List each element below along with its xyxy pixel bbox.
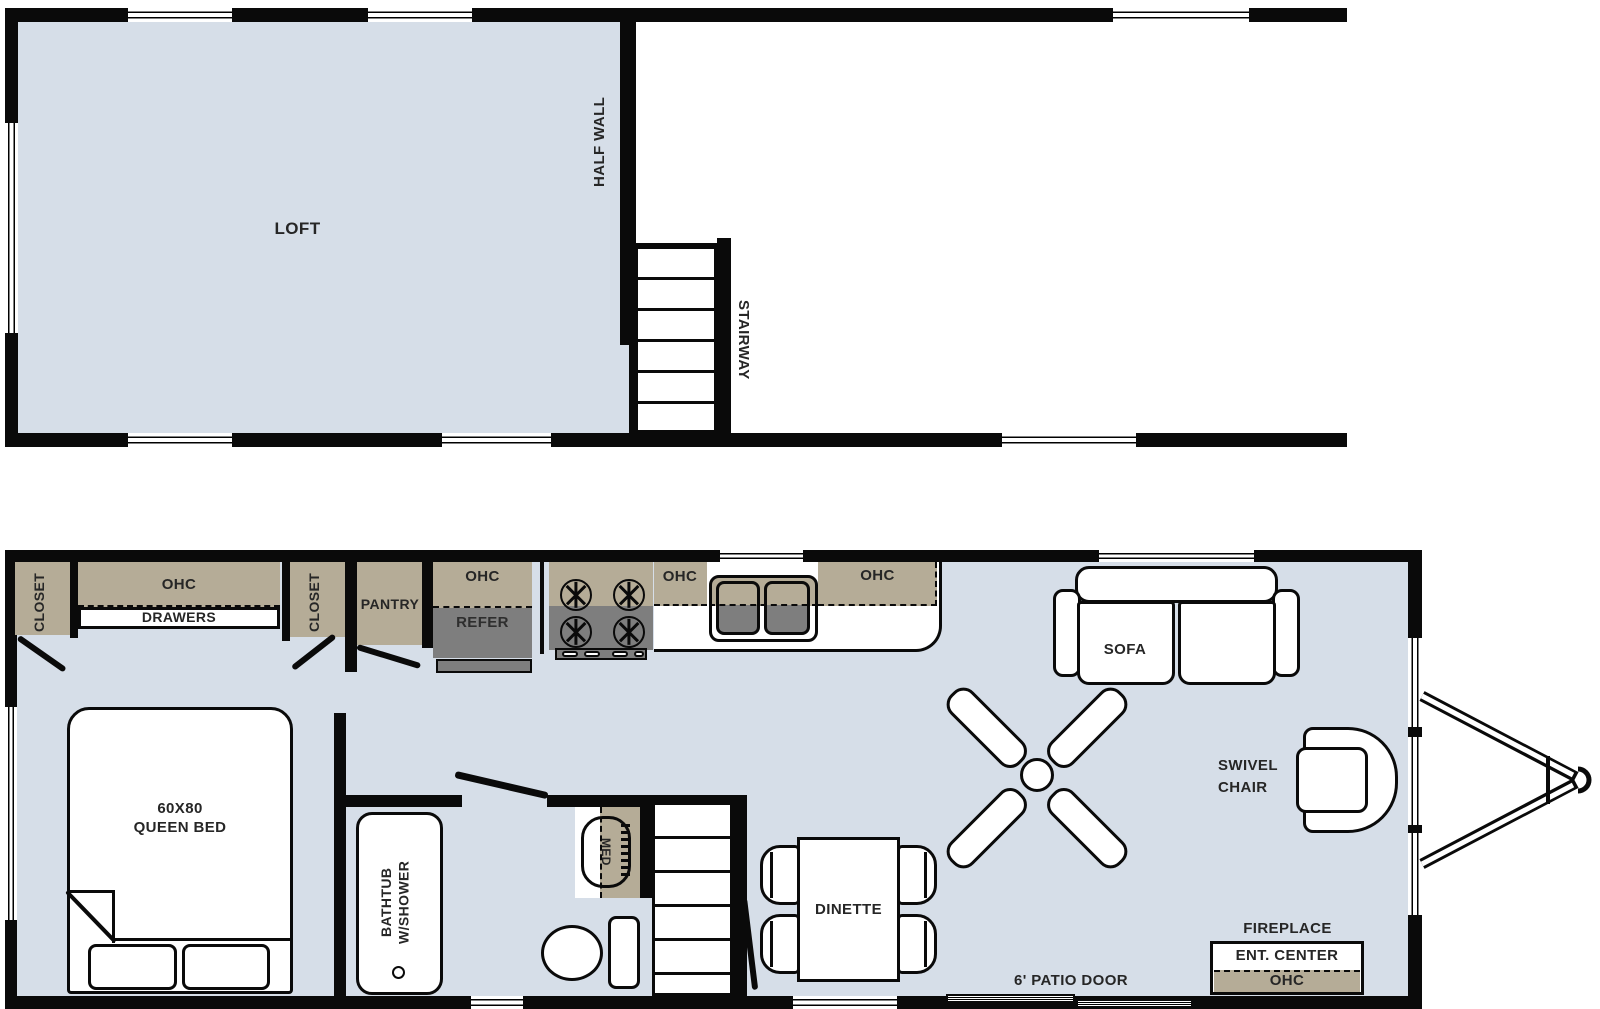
swivel-chair-label: SWIVEL CHAIR bbox=[1218, 755, 1303, 799]
bed-pillow-left bbox=[88, 944, 177, 990]
sofa-arm-right bbox=[1272, 589, 1300, 677]
sink-dash-line bbox=[709, 604, 818, 606]
trailer-hitch bbox=[1408, 680, 1600, 880]
burner-icon-2 bbox=[613, 579, 645, 611]
patio-door-panel-1 bbox=[946, 994, 1075, 1003]
loft-label: LOFT bbox=[230, 218, 365, 239]
bath-wall-med-right bbox=[640, 807, 652, 898]
patio-door-panel-2 bbox=[1076, 999, 1193, 1008]
range-knob-3 bbox=[612, 651, 628, 657]
refer-label: REFER bbox=[433, 614, 532, 633]
bed-foot-line bbox=[112, 938, 293, 941]
patio-door-label: 6' PATIO DOOR bbox=[996, 972, 1146, 991]
ohc-refer-label: OHC bbox=[433, 568, 532, 587]
bath-wall-top-right bbox=[547, 795, 652, 807]
swivel-chair-seat bbox=[1296, 747, 1368, 813]
loft-window-left bbox=[5, 123, 18, 333]
wall-stub-1 bbox=[70, 562, 78, 638]
closet-left-label: CLOSET bbox=[31, 566, 49, 632]
dinette-label: DINETTE bbox=[797, 901, 900, 920]
toilet-tank bbox=[608, 916, 640, 989]
ohc-mid-label: OHC bbox=[650, 568, 710, 587]
stairway-steps-lower bbox=[652, 795, 733, 996]
bath-divider-wall bbox=[334, 713, 346, 996]
ohc-right-label: OHC bbox=[818, 567, 937, 586]
ohc-ent-label: OHC bbox=[1214, 972, 1360, 991]
sofa-label: SOFA bbox=[1080, 641, 1170, 660]
bath-wall-top-left bbox=[346, 795, 462, 807]
loft-window-top-3 bbox=[1113, 8, 1249, 22]
range-knob-1 bbox=[562, 651, 578, 657]
sofa-back bbox=[1075, 566, 1278, 603]
bed-fold-line-h bbox=[67, 890, 115, 893]
stairway-wall-lower bbox=[733, 795, 747, 996]
dinette-chair-3 bbox=[897, 845, 937, 905]
burner-icon-1 bbox=[560, 579, 592, 611]
bathtub-label: BATHTUB W/SHOWER bbox=[378, 830, 413, 975]
main-wall-bottom bbox=[5, 996, 1420, 1009]
bed-window-left bbox=[5, 707, 17, 920]
dinette-chair-1 bbox=[760, 845, 800, 905]
dinette-chair-2 bbox=[760, 914, 800, 974]
toilet-bowl bbox=[541, 925, 603, 981]
stairway-steps-upper bbox=[635, 243, 717, 433]
ohc-bedroom-label: OHC bbox=[78, 576, 280, 595]
fireplace-label: FIREPLACE bbox=[1210, 920, 1365, 939]
bath-window bbox=[471, 996, 523, 1009]
wall-stub-3 bbox=[345, 562, 357, 672]
med-faucet-hatch bbox=[621, 824, 630, 880]
sink-bowl-left bbox=[716, 581, 760, 635]
fan-hub bbox=[1020, 758, 1054, 792]
closet-right-label: CLOSET bbox=[306, 566, 324, 632]
loft-window-top-2 bbox=[368, 8, 472, 22]
drawers-label: DRAWERS bbox=[78, 609, 280, 627]
pantry-label: PANTRY bbox=[352, 596, 428, 614]
ent-center-label: ENT. CENTER bbox=[1210, 947, 1364, 966]
sofa-seat-right bbox=[1178, 601, 1276, 685]
refer-base bbox=[436, 659, 532, 673]
bed-pillow-right bbox=[182, 944, 270, 990]
wall-stub-2 bbox=[282, 562, 290, 641]
loft-window-bottom-2 bbox=[442, 433, 551, 447]
stairway-wall-upper bbox=[717, 238, 731, 447]
loft-window-bottom-3 bbox=[1002, 433, 1136, 447]
sink-bowl-right bbox=[764, 581, 810, 635]
range-knob-2 bbox=[584, 651, 600, 657]
med-label: MED bbox=[598, 838, 613, 888]
wall-stub-4 bbox=[422, 562, 433, 648]
kitchen-window bbox=[720, 550, 803, 562]
kitchen-divider bbox=[540, 562, 544, 654]
half-wall-label: HALF WALL bbox=[591, 52, 610, 187]
dinette-window bbox=[793, 996, 897, 1009]
burner-icon-3 bbox=[560, 616, 592, 648]
loft-half-wall bbox=[620, 22, 636, 345]
floorplan-canvas: LOFT HALF WALL STAIRWAY 6' PATIO DOOR CL… bbox=[0, 0, 1600, 1009]
stairway-label-upper: STAIRWAY bbox=[733, 300, 752, 420]
loft-window-top-1 bbox=[128, 8, 232, 22]
burner-icon-4 bbox=[613, 616, 645, 648]
sofa-window bbox=[1099, 550, 1254, 562]
dinette-chair-4 bbox=[897, 914, 937, 974]
bathtub-drain bbox=[392, 966, 405, 979]
loft-window-bottom-1 bbox=[128, 433, 232, 447]
queen-bed-label: 60X80 QUEEN BED bbox=[105, 800, 255, 838]
range-knob-4 bbox=[634, 651, 644, 657]
